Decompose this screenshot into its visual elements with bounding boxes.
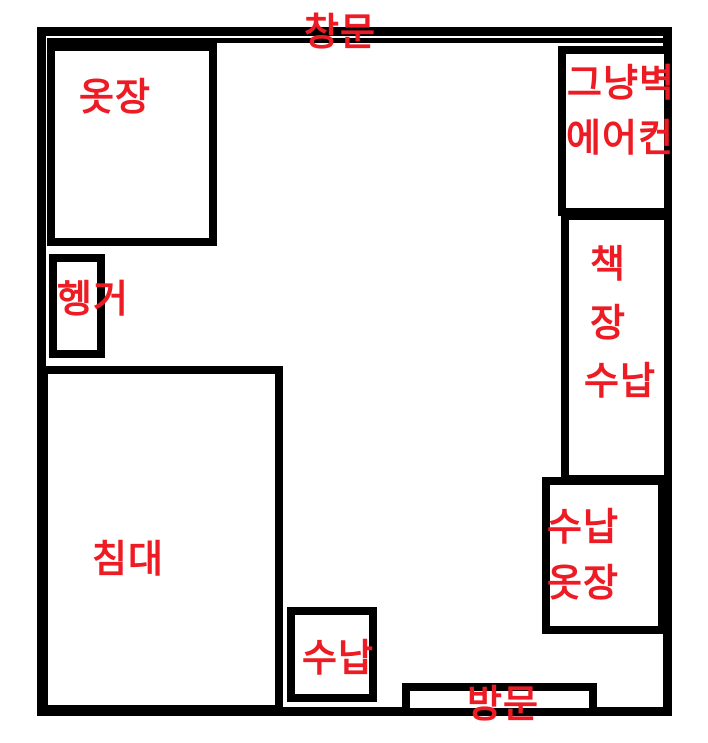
bed-label: 침대 — [92, 541, 164, 579]
hanger-label: 헹거 — [57, 281, 129, 319]
window-label: 창문 — [304, 14, 376, 52]
storage-wardrobe-label-line2: 옷장 — [547, 565, 619, 603]
wardrobe-label: 옷장 — [79, 79, 151, 117]
storage-label: 수납 — [302, 640, 374, 678]
bookshelf-label-line1: 책 — [590, 246, 626, 284]
wardrobe-box — [47, 43, 217, 246]
wall-aircon-label-line1: 그냥벽 — [567, 65, 675, 103]
wall-aircon-label-line2: 에어컨 — [566, 120, 674, 158]
floorplan-canvas: 창문 옷장 헹거 침대 그냥벽 에어컨 책 장 수납 수납 옷장 수납 방문 — [0, 0, 708, 743]
bookshelf-label-line2: 장 — [590, 305, 626, 343]
storage-wardrobe-label-line1: 수납 — [547, 509, 619, 547]
storage-wardrobe-box — [542, 477, 666, 634]
door-label: 방문 — [467, 686, 539, 724]
bookshelf-label-line3: 수납 — [584, 363, 656, 401]
